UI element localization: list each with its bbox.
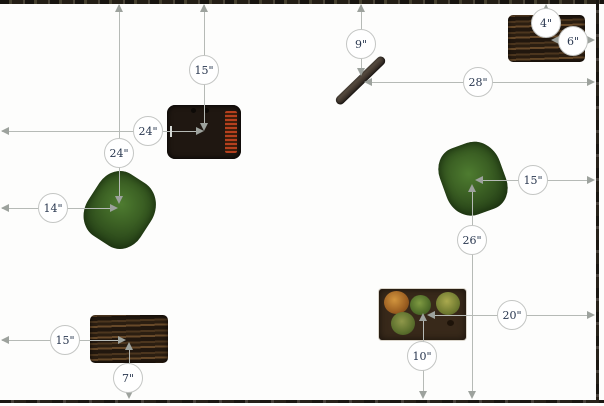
cactus-orange [384, 291, 409, 314]
measurement-badge: 28" [463, 67, 493, 97]
arrowhead-up-icon [200, 4, 208, 12]
measurement-label: 7" [122, 372, 134, 385]
measurement-badge: 24" [133, 116, 163, 146]
cactus-green-yellow [391, 312, 415, 335]
arrowhead-left-icon [475, 176, 483, 184]
edge-tick [170, 126, 172, 137]
arrowhead-left-icon [1, 336, 9, 344]
measurement-badge: 24" [104, 138, 134, 168]
measurement-label: 9" [355, 38, 367, 51]
measurement-label: 28" [468, 76, 487, 89]
measurement-label: 26" [462, 234, 481, 247]
measurement-label: 24" [138, 125, 157, 138]
measurement-badge: 10" [407, 341, 437, 371]
measurement-badge: 14" [38, 193, 68, 223]
soil-spot [447, 320, 454, 326]
arrowhead-down-icon [419, 391, 427, 399]
arrowhead-down-icon [115, 196, 123, 204]
bush-right-object[interactable] [432, 135, 515, 223]
arrowhead-left-icon [427, 311, 435, 319]
measurement-badge: 7" [113, 363, 143, 393]
measurement-label: 4" [540, 17, 552, 30]
arrowhead-left-icon [1, 127, 9, 135]
arrowhead-up-icon [419, 313, 427, 321]
measurement-label: 24" [109, 147, 128, 160]
arrowhead-up-icon [468, 184, 476, 192]
measurement-badge: 15" [189, 55, 219, 85]
arrowhead-up-icon [115, 4, 123, 12]
arrowhead-right-icon [196, 127, 204, 135]
measurement-label: 20" [502, 309, 521, 322]
measurement-badge: 15" [50, 325, 80, 355]
measurement-label: 6" [567, 35, 579, 48]
canvas-border-top [0, 0, 604, 4]
arrowhead-left-icon [1, 204, 9, 212]
arrowhead-left-icon [364, 78, 372, 86]
measurement-label: 15" [523, 174, 542, 187]
measurement-badge: 6" [558, 26, 588, 56]
arrowhead-down-icon [468, 391, 476, 399]
measure-line [472, 186, 473, 397]
planter-knob [191, 108, 196, 113]
measurement-label: 10" [412, 350, 431, 363]
canvas-border-right [596, 0, 599, 403]
canvas-border-bottom [0, 400, 604, 403]
measure-line [119, 5, 120, 202]
bush-left-object[interactable] [74, 162, 167, 257]
measurement-badge: 9" [346, 29, 376, 59]
measurement-badge: 4" [531, 8, 561, 38]
garden-plan-canvas: 15" 24" 24" 14" 9" [0, 0, 604, 406]
arrowhead-right-icon [587, 36, 595, 44]
arrowhead-right-icon [587, 176, 595, 184]
measurement-badge: 26" [457, 225, 487, 255]
arrowhead-up-icon [125, 342, 133, 350]
measurement-label: 15" [55, 334, 74, 347]
cactus-yellow-green [436, 292, 460, 315]
arrowhead-right-icon [110, 204, 118, 212]
arrowhead-down-icon [357, 68, 365, 76]
measurement-badge: 15" [518, 165, 548, 195]
arrowhead-right-icon [587, 78, 595, 86]
red-trellis-column [225, 111, 237, 153]
arrowhead-right-icon [587, 311, 595, 319]
measurement-badge: 20" [497, 300, 527, 330]
measurement-label: 14" [43, 202, 62, 215]
arrowhead-up-icon [357, 4, 365, 12]
measurement-label: 15" [194, 64, 213, 77]
